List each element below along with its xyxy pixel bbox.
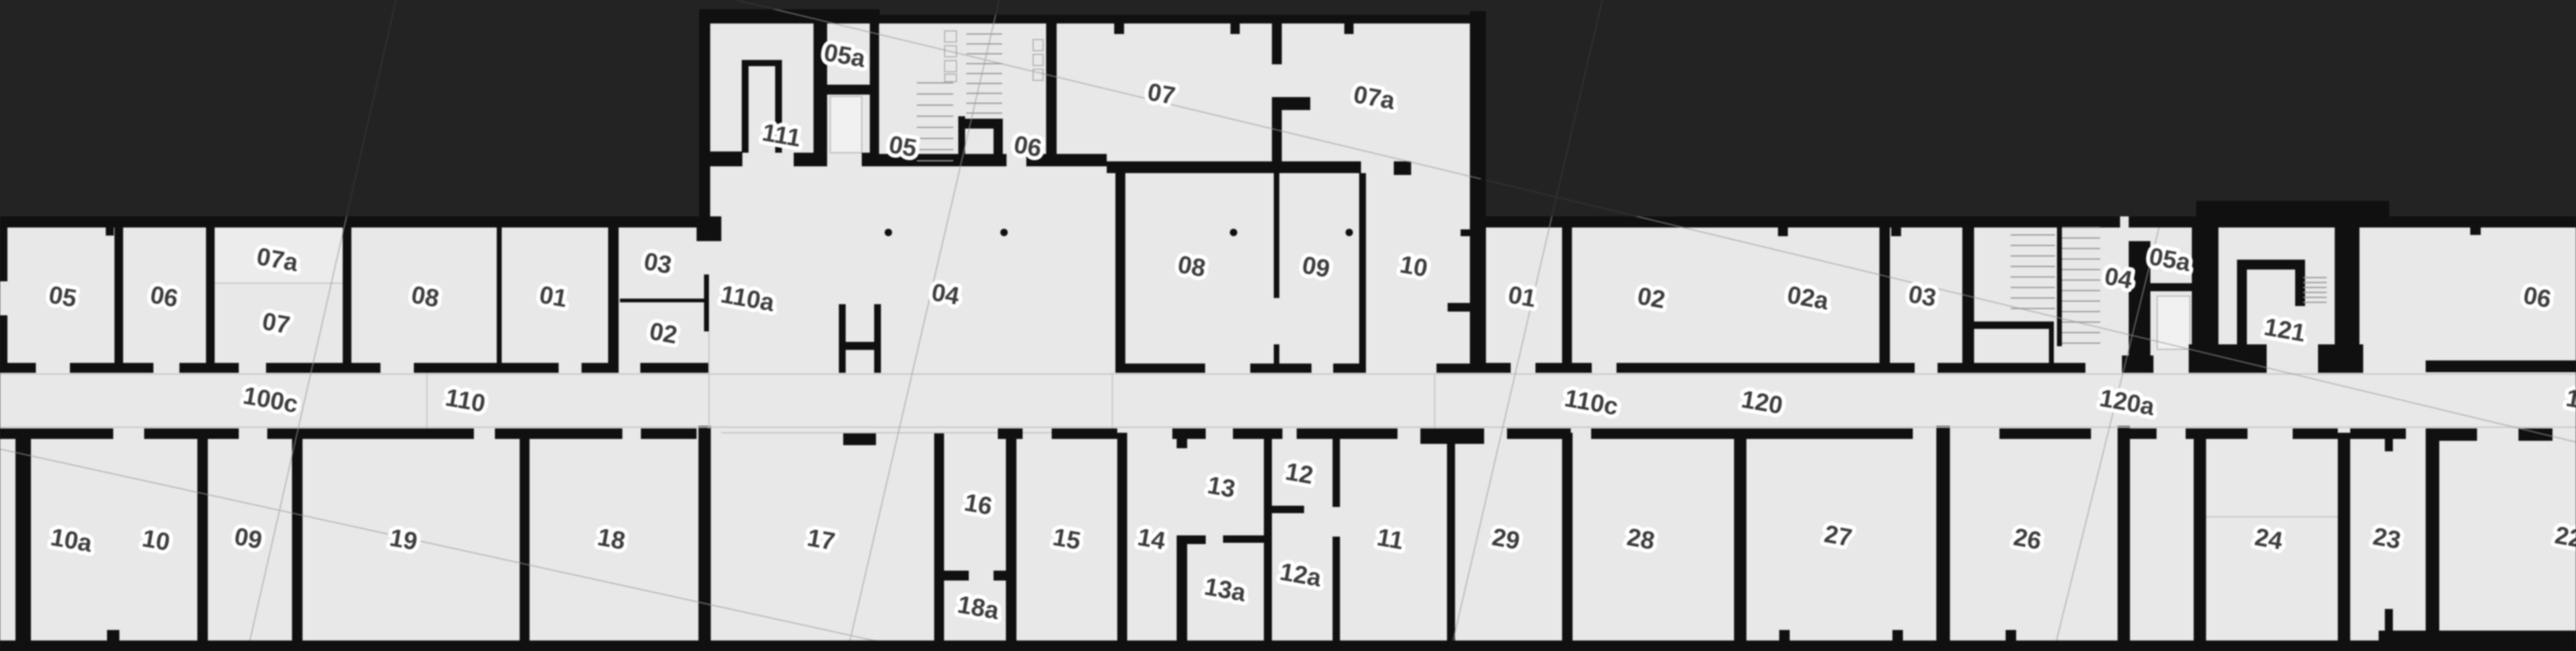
svg-text:11: 11 [1375, 524, 1406, 555]
svg-text:02: 02 [648, 318, 679, 349]
svg-text:06: 06 [1012, 131, 1044, 163]
svg-text:19: 19 [388, 524, 419, 556]
svg-text:27: 27 [1823, 521, 1854, 552]
svg-text:12: 12 [1284, 458, 1315, 490]
svg-text:24: 24 [2253, 524, 2285, 555]
svg-text:22: 22 [2553, 522, 2576, 553]
svg-text:29: 29 [1490, 524, 1522, 555]
svg-text:07: 07 [1146, 79, 1177, 110]
svg-text:26: 26 [2012, 524, 2043, 555]
svg-text:04: 04 [2103, 263, 2135, 294]
svg-text:09: 09 [1300, 252, 1332, 283]
svg-text:15: 15 [1051, 524, 1083, 555]
svg-text:06: 06 [2522, 282, 2553, 313]
svg-text:16: 16 [963, 489, 994, 521]
svg-text:06: 06 [148, 281, 180, 313]
svg-text:02: 02 [1636, 283, 1667, 314]
svg-text:01: 01 [1506, 281, 1538, 313]
svg-text:14: 14 [1136, 524, 1168, 555]
svg-text:08: 08 [410, 281, 441, 313]
svg-text:05: 05 [47, 281, 79, 313]
svg-text:04: 04 [930, 279, 962, 310]
svg-text:08: 08 [1176, 251, 1208, 283]
svg-text:10: 10 [140, 525, 172, 556]
svg-text:07: 07 [260, 308, 292, 339]
svg-text:01: 01 [538, 281, 569, 313]
svg-text:03: 03 [642, 248, 674, 279]
svg-text:09: 09 [233, 523, 264, 555]
svg-text:18: 18 [596, 524, 627, 555]
svg-text:23: 23 [2371, 523, 2403, 555]
svg-text:13: 13 [1206, 472, 1237, 503]
svg-text:28: 28 [1625, 524, 1657, 555]
svg-text:17: 17 [805, 524, 837, 556]
svg-text:05: 05 [887, 131, 919, 163]
svg-text:10: 10 [1398, 251, 1430, 283]
svg-text:03: 03 [1907, 281, 1938, 312]
